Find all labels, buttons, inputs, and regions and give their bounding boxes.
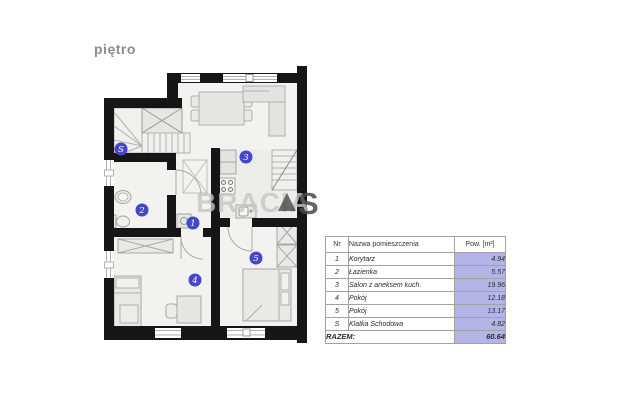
wardrobe-room4 [118, 239, 173, 253]
svg-text:5: 5 [253, 254, 258, 264]
table-header-row: Nr Nazwa pomieszczenia Pow. [m²] [326, 237, 506, 253]
svg-text:2: 2 [138, 206, 144, 216]
row-name: Pokój [349, 305, 455, 318]
row-area: 13.17 [455, 305, 506, 318]
wardrobe-room5 [277, 221, 297, 267]
header-name: Nazwa pomieszczenia [349, 237, 455, 253]
staircase-upper-flight [272, 150, 297, 190]
table-row: 5 Pokój 13.17 [326, 305, 506, 318]
row-nr: 3 [326, 279, 349, 292]
table-row: 1 Korytarz 4.94 [326, 253, 506, 266]
row-name: Klatka Schodowa [349, 318, 455, 331]
watermark: BRACIA S [196, 186, 319, 221]
watermark-letter: S [298, 186, 319, 221]
row-nr: 2 [326, 266, 349, 279]
kitchen-counter [220, 150, 236, 174]
staircase-flight [142, 133, 190, 153]
header-area: Pow. [m²] [455, 237, 506, 253]
room-label-room4: 4 [189, 274, 202, 287]
header-nr: Nr [326, 237, 349, 253]
total-value: 60.64 [455, 331, 506, 344]
svg-text:S: S [118, 145, 124, 155]
room-label-stairs: S [115, 143, 128, 156]
row-name: Łazienka [349, 266, 455, 279]
svg-text:4: 4 [191, 276, 197, 286]
total-label: RAZEM: [326, 331, 455, 344]
row-name: Salon z aneksem kuch. [349, 279, 455, 292]
table-row: S Klatka Schodowa 4.82 [326, 318, 506, 331]
row-area: 4.82 [455, 318, 506, 331]
watermark-text: BRACIA [196, 187, 311, 218]
svg-text:1: 1 [190, 219, 195, 229]
room-areas-table: Nr Nazwa pomieszczenia Pow. [m²] 1 Koryt… [325, 236, 506, 344]
row-area: 19.96 [455, 279, 506, 292]
room-label-salon: 3 [240, 151, 253, 164]
svg-text:3: 3 [243, 153, 248, 163]
row-nr: S [326, 318, 349, 331]
row-area: 4.94 [455, 253, 506, 266]
table-row: 4 Pokój 12.18 [326, 292, 506, 305]
room-label-room5: 5 [250, 252, 263, 265]
row-name: Korytarz [349, 253, 455, 266]
row-name: Pokój [349, 292, 455, 305]
row-nr: 5 [326, 305, 349, 318]
table-row: 3 Salon z aneksem kuch. 19.96 [326, 279, 506, 292]
room-label-bathroom: 2 [136, 204, 149, 217]
floor-plan: BRACIA S S 1 2 3 4 [0, 0, 620, 400]
washbasin-icon [115, 191, 131, 204]
table-row: 2 Łazienka 5.57 [326, 266, 506, 279]
row-nr: 4 [326, 292, 349, 305]
room-label-corridor: 1 [187, 217, 200, 230]
row-area: 5.57 [455, 266, 506, 279]
bed-room5 [243, 269, 291, 321]
row-nr: 1 [326, 253, 349, 266]
row-area: 12.18 [455, 292, 506, 305]
floor-plan-page: piętro [0, 0, 620, 400]
bed-room4 [114, 276, 141, 327]
stair-void [142, 108, 182, 133]
table-total-row: RAZEM: 60.64 [326, 331, 506, 344]
